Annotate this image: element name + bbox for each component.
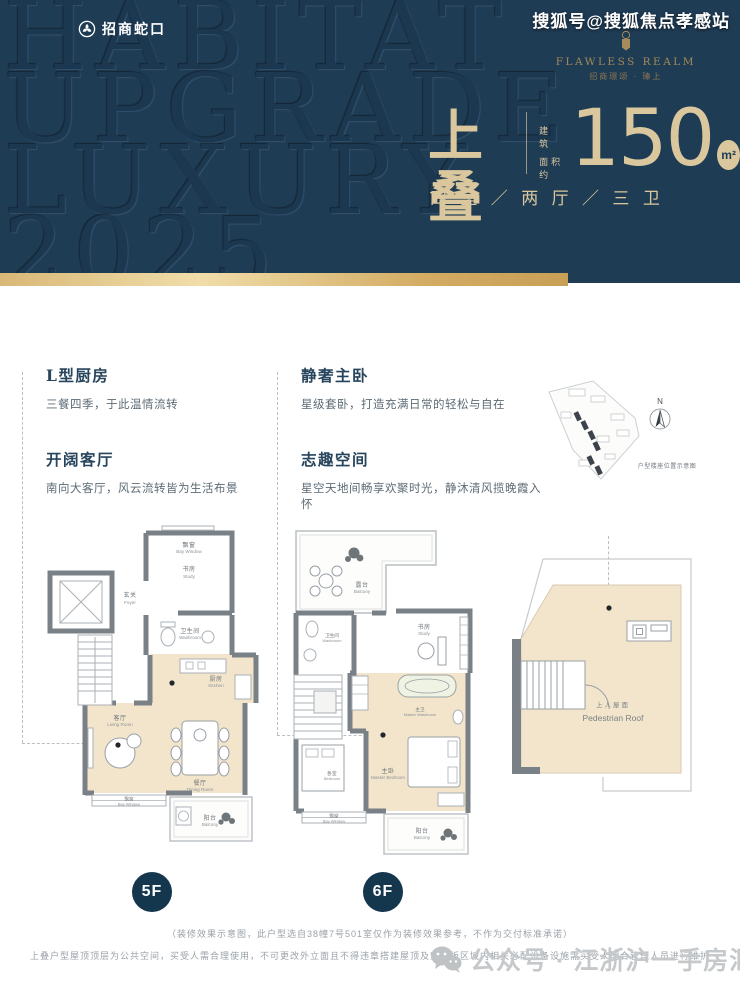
room-label-washroom-en: Washroom bbox=[179, 635, 201, 640]
room-label-bedroom-en: Bedroom bbox=[324, 776, 341, 781]
area-label-line1: 建 筑 bbox=[539, 124, 566, 150]
gold-accent-bar bbox=[0, 273, 568, 286]
room-label-living-en: Living Room bbox=[107, 722, 133, 727]
room-label-living-zh: 客厅 bbox=[113, 714, 126, 722]
emblem-crest-icon bbox=[618, 30, 634, 52]
room-label-bay2-en: Bay Window bbox=[118, 802, 140, 807]
room-label-dining-zh: 餐厅 bbox=[193, 779, 206, 787]
bottom-watermark: 公众号 · 江浙沪一手房汇总 bbox=[430, 941, 740, 977]
wechat-icon bbox=[430, 945, 462, 973]
callout-dot bbox=[606, 605, 611, 610]
emblem-subtitle: 招商璟颂 · 瑧上 bbox=[556, 71, 696, 82]
brand-logo: 招商蛇口 bbox=[78, 19, 166, 39]
wall bbox=[512, 639, 521, 773]
room-label-terrace-zh: 露台 bbox=[355, 581, 368, 589]
room-label-study-zh: 书房 bbox=[417, 623, 430, 631]
layout-spec: 四 室 ／ 两 厅 ／ 三 卫 bbox=[430, 184, 730, 209]
room-label-bay-zh: 飘窗 bbox=[182, 541, 195, 549]
roof-equipment bbox=[627, 621, 671, 641]
room-label-study-en: Study bbox=[183, 574, 195, 579]
room-label-kitchen-zh: 厨房 bbox=[209, 675, 222, 683]
project-emblem: FLAWLESS REALM 招商璟颂 · 瑧上 bbox=[556, 30, 696, 82]
room-label-masterwash-en: Master Washroom bbox=[404, 712, 437, 717]
stairs bbox=[294, 675, 342, 739]
room-label-dining-en: Dining Room bbox=[187, 787, 214, 792]
room-label-masterbed-zh: 主卧 bbox=[381, 767, 394, 775]
stairs bbox=[521, 661, 585, 709]
watermark-line: 2025 bbox=[4, 206, 282, 283]
area-value: 150 bbox=[570, 102, 713, 176]
svg-text:N: N bbox=[657, 397, 663, 406]
callout-dot bbox=[380, 732, 385, 737]
cmsk-logo-icon bbox=[78, 20, 96, 38]
callout-line bbox=[22, 372, 23, 743]
room-label-foyer-en: Foyer bbox=[124, 600, 136, 605]
watermark-text: 公众号 · 江浙沪一手房汇总 bbox=[470, 941, 740, 977]
feature-title: 开阔客厅 bbox=[46, 448, 296, 470]
roof-label-zh: 上人屋面 bbox=[596, 700, 630, 709]
hero-header: HABITAT UPGRADE LUXURY 2025 招商蛇口 搜狐号@搜狐焦… bbox=[0, 0, 740, 283]
sohu-watermark: 搜狐号@搜狐焦点孝感站 bbox=[532, 7, 730, 32]
emblem-title: FLAWLESS REALM bbox=[556, 56, 696, 68]
floor-plan-5f: 玄关 Foyer 飘窗 Bay Window 书房 Study 卫生间 Wash… bbox=[30, 523, 260, 873]
room-label-foyer-zh: 玄关 bbox=[123, 591, 136, 599]
room-label-study-en: Study bbox=[418, 631, 430, 636]
room-label-terrace-en: Balcony bbox=[354, 589, 371, 594]
room-label-kitchen-en: Kitchen bbox=[208, 683, 224, 688]
floor-plan-6f: 露台 Balcony 卫生间 Washroom 书房 Study 主卫 Mast… bbox=[288, 523, 480, 873]
room-label-washroom-zh: 卫生间 bbox=[180, 627, 200, 635]
feature-item: L型厨房 三餐四季，于此温情流转 bbox=[46, 364, 296, 412]
wall bbox=[512, 767, 540, 774]
disclaimer-1: （装修效果示意图，此户型选自38幢7号501室仅作为装修效果参考，不作为交付标准… bbox=[0, 927, 740, 940]
room-label-balcony-en: Balcony bbox=[202, 822, 219, 827]
roof-plan: 上人屋面 Pedestrian Roof bbox=[485, 545, 730, 808]
feature-title: 静奢主卧 bbox=[301, 364, 551, 386]
room-label-bay-en: Bay Window bbox=[323, 819, 345, 824]
feature-desc: 南向大客厅，风云流转皆为生活布景 bbox=[46, 480, 296, 496]
callout-dot bbox=[115, 742, 120, 747]
area-unit-badge: m² bbox=[717, 140, 740, 170]
headline-divider bbox=[526, 112, 528, 174]
room-label-masterbed-en: Master Bedroom bbox=[371, 775, 405, 780]
site-plan: N 户型楼座位置示意图 bbox=[535, 376, 735, 496]
room-label-balcony-en: Balcony bbox=[414, 835, 431, 840]
callout-dot bbox=[169, 680, 174, 685]
feature-item: 志趣空间 星空天地间畅享欢聚时光，静沐清风揽晚霞入怀 bbox=[301, 448, 551, 512]
floor-badge-6f: 6F bbox=[363, 872, 403, 912]
poster-page: HABITAT UPGRADE LUXURY 2025 招商蛇口 搜狐号@搜狐焦… bbox=[0, 0, 740, 987]
roof-label-en: Pedestrian Roof bbox=[583, 713, 645, 723]
feature-desc: 星级套卧，打造充满日常的轻松与自在 bbox=[301, 396, 551, 412]
room-label-bay-en: Bay Window bbox=[176, 549, 202, 554]
feature-desc: 星空天地间畅享欢聚时光，静沐清风揽晚霞入怀 bbox=[301, 480, 551, 512]
area-label-line2: 面积约 bbox=[539, 155, 566, 181]
room-label-balcony-zh: 阳台 bbox=[415, 827, 428, 835]
site-plan-caption: 户型楼座位置示意图 bbox=[638, 462, 697, 470]
room-label-study-zh: 书房 bbox=[182, 565, 195, 573]
area-label: 建 筑 面积约 bbox=[539, 124, 566, 181]
floor-badge-5f: 5F bbox=[132, 872, 172, 912]
north-compass-icon: N bbox=[650, 397, 670, 429]
stairs bbox=[78, 635, 112, 705]
feature-title: 志趣空间 bbox=[301, 448, 551, 470]
feature-title: L型厨房 bbox=[46, 364, 296, 386]
feature-item: 开阔客厅 南向大客厅，风云流转皆为生活布景 bbox=[46, 448, 296, 496]
room-label-balcony-zh: 阳台 bbox=[203, 814, 216, 822]
feature-desc: 三餐四季，于此温情流转 bbox=[46, 396, 296, 412]
feature-item: 静奢主卧 星级套卧，打造充满日常的轻松与自在 bbox=[301, 364, 551, 412]
brand-name: 招商蛇口 bbox=[102, 19, 166, 39]
room-label-washroom-en: Washroom bbox=[322, 638, 342, 643]
callout-line bbox=[277, 372, 278, 735]
